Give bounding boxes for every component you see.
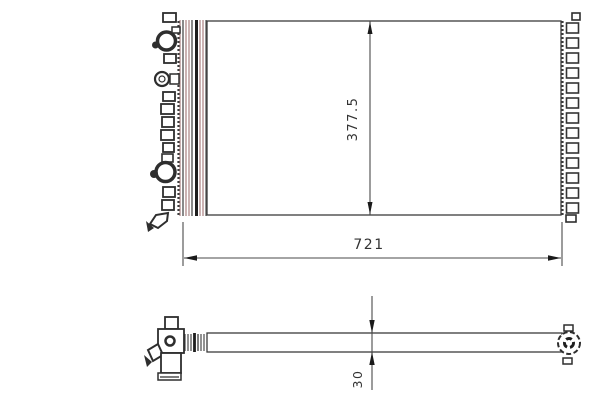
tank-tab [163,143,174,152]
tank-tab [163,92,175,101]
height-dimension-label: 377.5 [346,97,361,142]
tank-tab [163,13,176,22]
drawing-svg: 377.5 721 [0,0,600,400]
left-tank [146,13,180,232]
tank-tab [572,13,580,20]
right-end-cap [558,325,580,364]
upper-port-stub [152,42,159,49]
fitting-neck [165,317,178,329]
fitting-bore [166,337,175,346]
thickness-dimension-label: 30 [350,370,365,389]
upper-port [158,32,176,50]
tank-tab [161,130,174,140]
tank-tab [172,27,180,33]
lower-port [156,163,175,182]
tank-tab [162,154,173,162]
tank-tab [566,215,576,222]
arrow-left-icon [184,255,197,261]
tank-tab [161,104,174,114]
radiator-technical-drawing: 377.5 721 [0,0,600,400]
lower-port-stub [150,170,158,178]
tank-tab [162,200,174,210]
cap-tab [563,358,572,364]
radiator-core-outline [207,21,561,215]
radiator-profile-body [207,333,562,352]
side-view: 30 [144,296,580,390]
width-dimension-label: 721 [353,237,384,253]
drain-fitting [150,213,168,228]
front-view: 377.5 721 [146,13,580,266]
tank-tab [162,117,174,127]
tank-tab [170,74,179,84]
threaded-neck [185,333,204,352]
tank-tab [164,54,176,63]
cap-gear-edge [558,332,580,354]
filler-ring-inner [159,76,165,82]
fitting-lower-block [161,353,181,373]
arrow-down-icon [369,320,374,333]
left-fitting [144,317,184,380]
cap-tab [564,325,573,331]
arrow-right-icon [548,255,561,261]
tank-tab [163,187,175,197]
width-dimension: 721 [183,222,562,266]
left-fin-section [180,20,206,216]
right-tank [565,13,580,222]
arrow-up-icon [369,352,374,365]
